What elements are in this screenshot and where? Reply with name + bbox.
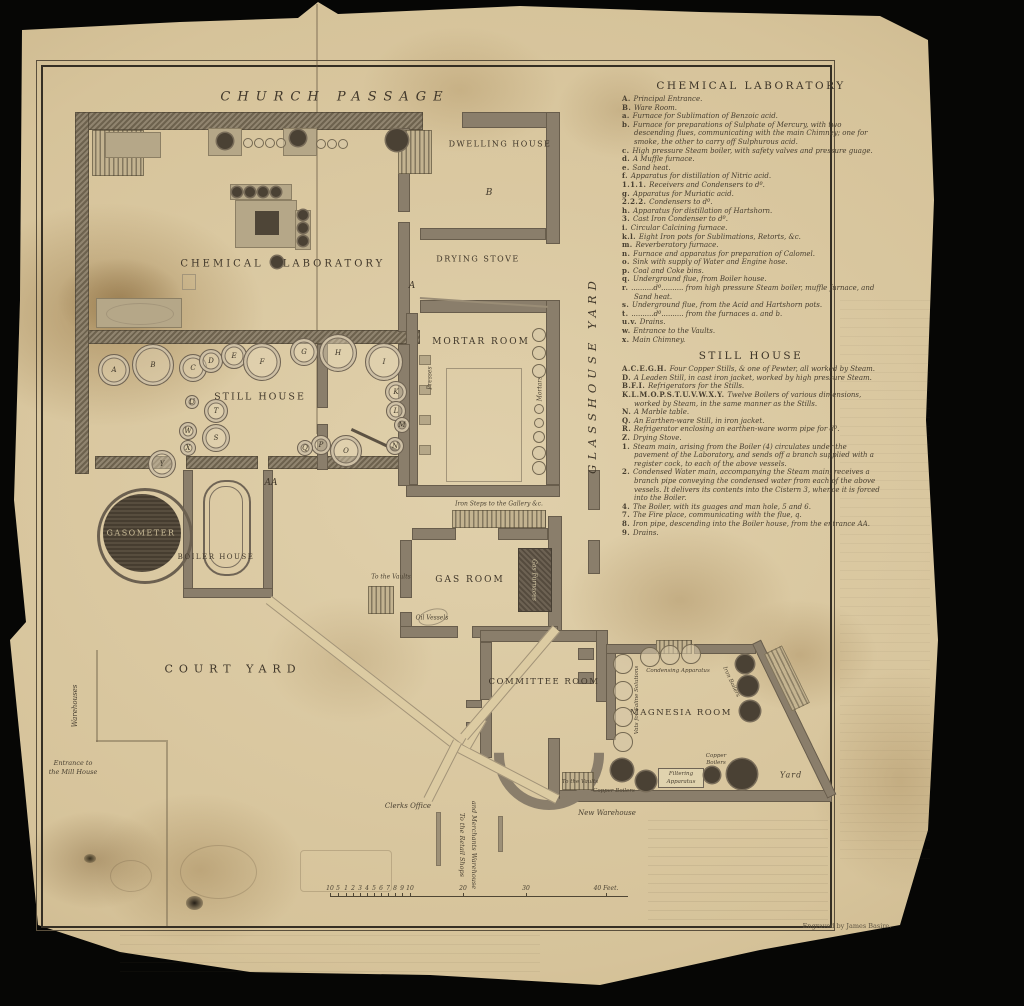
furnace-boiler-circle [611, 759, 633, 781]
mortar-room-table [446, 368, 522, 482]
note-presses: Presses [427, 366, 434, 389]
note-entrance-mill-2: the Mill House [49, 768, 98, 776]
legend-list-chemical: A. Principal Entrance.B. Ware Room.a. Fu… [622, 95, 880, 344]
wall-segment [75, 112, 89, 474]
note-oil-vessels: Oil Vessels [416, 615, 449, 622]
furnace-boiler-circle [738, 676, 758, 696]
furnace-boiler-circle [232, 187, 242, 197]
apparatus-circle [265, 138, 275, 148]
yard-label-court-yard: COURT YARD [164, 663, 301, 676]
room-label-drying-stove: DRYING STOVE [436, 255, 519, 264]
boundary-line [96, 650, 98, 742]
wall-segment [498, 816, 503, 852]
press [419, 415, 431, 425]
scale-tick [410, 893, 411, 897]
legend-item: Z. Drying Stove. [622, 434, 880, 443]
still-vessel-label: C [190, 364, 195, 372]
still-vessel-T: T [204, 399, 228, 423]
note-filtering-2: Apparatus [667, 779, 696, 785]
apparatus-circle [613, 654, 633, 674]
wall-segment [263, 470, 273, 596]
scale-tick [395, 893, 396, 897]
still-vessel-label: D [208, 357, 214, 365]
legend-item: 9. Drains. [622, 529, 880, 538]
still-vessel-label: S [214, 434, 219, 442]
still-vessel-label: F [260, 358, 265, 366]
note-filtering-1: Filtering [669, 771, 693, 777]
legend-item: 7. The Fire place, communicating with th… [622, 511, 880, 520]
apparatus-circle [316, 139, 326, 149]
engraver-credit: Engraved by James Basire. [803, 922, 892, 930]
boundary-line [166, 742, 168, 926]
legend-item: b. Furnace for preparations of Sulphate … [622, 121, 880, 147]
still-vessel-K: K [385, 381, 407, 403]
apparatus-circle [327, 139, 337, 149]
apparatus-circle [613, 732, 633, 752]
note-clerks-office: Clerks Office [385, 802, 431, 810]
legend-item: n. Furnace and apparatus for preparation… [622, 250, 880, 259]
legend-item: 1.1.1. Receivers and Condensers to dº. [622, 181, 880, 190]
legend-title-chemical-laboratory: CHEMICAL LABORATORY [622, 80, 880, 92]
legend-item: K.L.M.O.P.S.T.U.V.W.X.Y. Twelve Boilers … [622, 391, 880, 408]
still-vessel-label: L [394, 407, 399, 415]
still-vessel-H: H [319, 334, 357, 372]
apparatus-circle [254, 138, 264, 148]
furnace-boiler-circle [217, 133, 233, 149]
apparatus-circle [681, 644, 701, 664]
scale-tick-label: 7 [386, 885, 390, 892]
still-vessel-U: U [185, 395, 199, 409]
still-vessel-label: M [398, 421, 405, 429]
legend-item: m. Reverberatory furnace. [622, 241, 880, 250]
scale-tick [353, 893, 354, 897]
room-letter-a: A [409, 281, 416, 291]
vault-steps [368, 586, 394, 614]
still-vessel-label: G [301, 348, 307, 356]
room-label-chemical: CHEMICAL [180, 259, 263, 270]
wall-segment [694, 644, 756, 654]
apparatus-circle [243, 138, 253, 148]
yard-label-glasshouse: GLASSHOUSE YARD [585, 276, 599, 474]
apparatus-circle [640, 647, 660, 667]
apparatus-circle [613, 681, 633, 701]
still-vessel-G: G [290, 338, 318, 366]
note-condensing-apparatus: Condensing Apparatus [646, 668, 710, 674]
still-vessel-X: X [180, 440, 196, 456]
scale-tick-label: 6 [379, 885, 383, 892]
furnace-boiler-circle [298, 210, 308, 220]
scale-tick-label: 10 [406, 885, 414, 892]
note-merchants-warehouse: and Merchants Warehouse [470, 801, 478, 889]
scale-tick-label: 4 [365, 885, 369, 892]
wall-segment [412, 528, 456, 540]
wall-segment [578, 648, 594, 660]
scale-tick [388, 893, 389, 897]
legend-item: R. Refrigerator enclosing an earthen-war… [622, 425, 880, 434]
wall-segment [436, 812, 441, 866]
scale-tick-label: 9 [400, 885, 404, 892]
yard-label-yard: Yard [780, 771, 802, 780]
legend-item: g. Apparatus for Muriatic acid. [622, 190, 880, 199]
legend-item: o. Sink with supply of Water and Engine … [622, 258, 880, 267]
room-label-dwelling-house: DWELLING HOUSE [449, 140, 552, 149]
bleedthrough-shape [110, 860, 152, 892]
still-vessel-label: A [111, 366, 116, 374]
note-mortars: Mortars [537, 377, 544, 402]
wall-segment [498, 528, 548, 540]
scale-tick [338, 893, 339, 897]
wall-segment [480, 642, 492, 700]
legend-item: 2.2.2. Condensers to dº. [622, 198, 880, 207]
room-label-gas-room: GAS ROOM [435, 575, 504, 585]
furnace-boiler-circle [245, 187, 255, 197]
wall-segment [75, 112, 423, 130]
wall-segment [548, 790, 832, 802]
still-vessel-label: O [343, 447, 349, 455]
legend-item: 2. Condensed Water main, accompanying th… [622, 468, 880, 502]
scale-tick [367, 893, 368, 897]
still-vessel-label: K [393, 388, 398, 396]
furnace-boiler-circle [298, 236, 308, 246]
note-iron-steps: Iron Steps to the Gallery &c. [455, 501, 543, 508]
furnace-boiler-circle [271, 256, 283, 268]
iron-steps [452, 510, 546, 528]
still-vessel-O: O [330, 435, 362, 467]
still-vessel-N: N [386, 437, 404, 455]
coal-coke-bins [105, 132, 161, 158]
still-vessel-label: H [335, 349, 341, 357]
apparatus-circle [338, 139, 348, 149]
scale-tick-label: 10 [326, 885, 334, 892]
note-copper-boilers-1: Copper Boilers [593, 788, 635, 794]
still-vessel-M: M [394, 417, 410, 433]
room-label-laboratory: LABORATORY [283, 259, 386, 270]
room-label-boiler-house: BOILER HOUSE [178, 553, 255, 561]
ink-spot [84, 854, 96, 863]
legend-item: a. Furnace for Sublimation of Benzoic ac… [622, 112, 880, 121]
room-label-gasometer: GASOMETER [107, 529, 176, 538]
legend-panel: CHEMICAL LABORATORY A. Principal Entranc… [622, 80, 880, 537]
furnace-boiler-circle [740, 701, 760, 721]
legend-item: w. Entrance to the Vaults. [622, 327, 880, 336]
room-letter-b: B [486, 188, 493, 198]
legend-item: r. ..........dº.......... from high pres… [622, 284, 880, 301]
bleedthrough-text [648, 820, 828, 920]
note-gas-furnaces: Gas Furnaces [531, 559, 538, 601]
apparatus-circle [660, 645, 680, 665]
street-label-church-passage: CHURCH PASSAGE [220, 90, 449, 105]
legend-item: A.C.E.G.H. Four Copper Stills, & one of … [622, 365, 880, 374]
wall-segment [88, 330, 420, 344]
scale-tick [360, 893, 361, 897]
still-vessel-label: U [189, 398, 195, 406]
still-vessel-label: Q [302, 444, 308, 452]
still-vessel-label: N [392, 442, 398, 450]
boundary-line [96, 740, 168, 742]
still-vessel-W: W [179, 422, 197, 440]
apparatus-circle [532, 328, 546, 342]
legend-item: f. Apparatus for distillation of Nitric … [622, 172, 880, 181]
bleedthrough-text [120, 935, 540, 975]
note-entrance-mill-1: Entrance to [54, 759, 93, 767]
furnace-boiler-circle [704, 767, 720, 783]
wall-segment [406, 485, 560, 497]
still-vessel-F: F [243, 343, 281, 381]
note-to-the-vaults: To the Vaults [371, 574, 410, 581]
legend-item: c. High pressure Steam boiler, with safe… [622, 147, 880, 156]
still-vessel-label: W [184, 427, 191, 435]
apparatus-circle [534, 404, 544, 414]
wall-segment [546, 300, 560, 485]
still-vessel-S: S [202, 424, 230, 452]
still-vessel-label: I [383, 358, 386, 366]
press [419, 355, 431, 365]
furnace-boiler-circle [636, 771, 656, 791]
scale-tick [330, 893, 331, 897]
legend-item: A. Principal Entrance. [622, 95, 880, 104]
scale-tick [606, 893, 607, 897]
still-vessel-D: D [199, 349, 223, 373]
apparatus-circle [532, 364, 546, 378]
still-vessel-Q: Q [297, 440, 313, 456]
apparatus-circle [276, 138, 286, 148]
press [419, 445, 431, 455]
legend-item: x. Main Chimney. [622, 336, 880, 345]
furnace-boiler-circle [271, 187, 281, 197]
furnace-boiler-circle [290, 130, 306, 146]
room-label-mortar-room: MORTAR ROOM [432, 337, 530, 347]
entrance-label-aa: AA [265, 478, 278, 488]
apparatus-box [182, 274, 196, 290]
still-vessel-label: B [150, 361, 155, 369]
note-copper-boilers-2a: Copper [706, 753, 726, 759]
legend-title-still-house: STILL HOUSE [622, 350, 880, 362]
note-copper-boilers-2b: Boilers [706, 760, 726, 766]
still-vessel-label: T [214, 407, 219, 415]
legend-item: B. Ware Room. [622, 104, 880, 113]
apparatus-circle [532, 346, 546, 360]
still-vessel-label: Y [160, 460, 165, 468]
wall-segment [588, 540, 600, 574]
legend-item: u.v. Drains. [622, 318, 880, 327]
apparatus-circle [534, 418, 544, 428]
still-vessel-label: X [186, 444, 191, 452]
wall-segment [420, 228, 546, 240]
scale-tick-label: 3 [358, 885, 362, 892]
ink-spot [186, 896, 203, 910]
scale-tick [381, 893, 382, 897]
scale-tick [463, 893, 464, 897]
scale-tick-label: 5 [336, 885, 340, 892]
still-vessel-P: P [311, 435, 331, 455]
engraved-floor-plan: CHURCH PASSAGE DWELLING HOUSE B DRYING S… [0, 0, 1024, 1006]
still-vessel-label: P [319, 441, 324, 449]
legend-item: 1. Steam main, arising from the Boiler (… [622, 443, 880, 469]
wall-segment [400, 540, 412, 598]
furnace-boiler-circle [727, 759, 757, 789]
wall-segment [546, 112, 560, 244]
legend-item: 8. Iron pipe, descending into the Boiler… [622, 520, 880, 529]
furnace-boiler-circle [298, 223, 308, 233]
apparatus-circle [532, 461, 546, 475]
furnace-boiler-circle [386, 129, 408, 151]
scale-tick [526, 893, 527, 897]
scale-tick-label: 2 [351, 885, 355, 892]
note-vats-saline: Vats for Saline Solutions [634, 666, 640, 734]
legend-item: q. Underground flue, from Boiler house. [622, 275, 880, 284]
still-vessel-Y: Y [148, 450, 176, 478]
scale-tick [402, 893, 403, 897]
scale-tick-label: 1 [344, 885, 348, 892]
scale-tick [346, 893, 347, 897]
furnace-boiler-circle [736, 655, 754, 673]
wall-segment [466, 700, 482, 708]
main-chimney [255, 211, 279, 235]
bleedthrough-shape [180, 845, 257, 899]
room-label-committee-room: COMMITTEE ROOM [489, 677, 600, 687]
wall-segment [588, 470, 600, 510]
note-retail-shops: To the Retail Shops [458, 813, 466, 877]
furnace-boiler-circle [258, 187, 268, 197]
room-label-still-house: STILL HOUSE [214, 392, 306, 403]
note-new-warehouse: New Warehouse [578, 809, 636, 817]
apparatus-circle [533, 431, 545, 443]
scale-tick-label: 5 [372, 885, 376, 892]
steam-boiler-oval [106, 303, 174, 325]
room-label-magnesia-room: MAGNESIA ROOM [630, 708, 732, 718]
still-vessel-A: A [98, 354, 130, 386]
scale-tick-label: 8 [393, 885, 397, 892]
wall-segment [400, 626, 458, 638]
legend-item: 3. Cast Iron Condenser to dº. [622, 215, 880, 224]
legend-list-still-house: A.C.E.G.H. Four Copper Stills, & one of … [622, 365, 880, 537]
wall-segment [186, 456, 258, 469]
apparatus-circle [532, 446, 546, 460]
scale-tick-label: 40 Feet. [594, 885, 619, 892]
still-vessel-I: I [365, 343, 403, 381]
wall-segment [183, 588, 273, 598]
legend-item: k.l. Eight Iron pots for Sublimations, R… [622, 233, 880, 242]
still-vessel-label: E [231, 352, 236, 360]
legend-item: N. A Marble table. [622, 408, 880, 417]
scale-tick [374, 893, 375, 897]
still-vessel-B: B [132, 344, 174, 386]
note-warehouses: Warehouses [71, 685, 79, 728]
note-to-the-vaults-2: To the Vaults [562, 779, 598, 785]
apparatus-circle [613, 707, 633, 727]
scale-tick-label: 20 [459, 885, 467, 892]
legend-item: d. A Muffle furnace. [622, 155, 880, 164]
legend-item: i. Circular Calcining furnace. [622, 224, 880, 233]
legend-item: s. Underground flue, from the Acid and H… [622, 301, 880, 310]
scale-tick-label: 30 [522, 885, 530, 892]
